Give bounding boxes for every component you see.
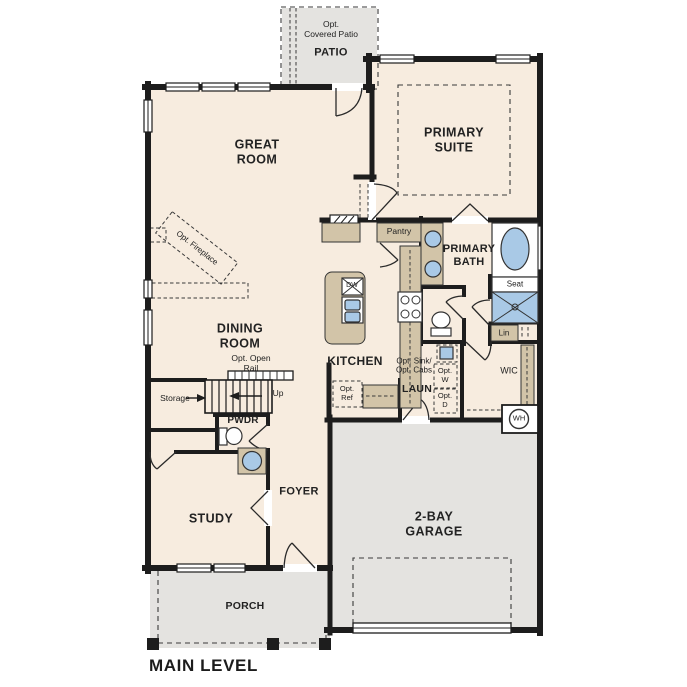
floor-plan: Opt. Covered Patio PATIO GREAT ROOM PRIM… (0, 0, 687, 687)
toilet-icon (226, 428, 242, 445)
annotation-pantry: Pantry (387, 226, 412, 236)
toilet-icon (432, 312, 450, 328)
room-label-foyer: FOYER (279, 486, 318, 499)
room-label-primary-bath: PRIMARY BATH (443, 243, 495, 269)
room-label-wic: WIC (500, 366, 518, 377)
annotation-opt-ref: Opt. Ref (340, 385, 354, 403)
room-label-kitchen: KITCHEN (327, 354, 382, 368)
rear-counter (322, 223, 360, 242)
annotation-up: Up (273, 388, 284, 398)
room-label-laundry: LAUN (402, 383, 432, 395)
vanity-sink-icon (425, 261, 441, 277)
opt-sink-icon (440, 347, 453, 359)
room-label-study: STUDY (189, 512, 233, 527)
vanity-sink-icon (425, 231, 441, 247)
annotation-storage: Storage (160, 393, 190, 403)
annotation-opt-dryer: Opt. D (438, 392, 452, 410)
annotation-linen: Lin (499, 328, 510, 337)
annotation-seat: Seat (507, 279, 523, 288)
room-label-porch: PORCH (226, 600, 265, 612)
room-label-dining-room: DINING ROOM (217, 321, 263, 351)
annotation-water-heater: WH (513, 415, 526, 424)
room-label-garage: 2-BAY GARAGE (405, 509, 462, 539)
tub-icon (501, 228, 529, 270)
floor-plan-canvas (0, 0, 687, 687)
room-label-patio: PATIO (314, 47, 347, 60)
annotation-dishwasher: DW (346, 282, 358, 290)
room-label-powder: PWDR (227, 415, 258, 427)
annotation-opt-open-rail: Opt. Open Rail (231, 353, 270, 373)
room-label-primary-suite: PRIMARY SUITE (424, 125, 484, 155)
annotation-opt-washer: Opt. W (438, 367, 452, 385)
patio-option-note: Opt. Covered Patio (304, 19, 358, 39)
powder-sink-icon (243, 452, 262, 471)
room-label-great-room: GREAT ROOM (235, 137, 280, 167)
garage-door (353, 623, 511, 633)
level-title: MAIN LEVEL (149, 656, 258, 676)
annotation-opt-sink-cabs: Opt. Sink/ Opt. Cabs (396, 357, 432, 376)
